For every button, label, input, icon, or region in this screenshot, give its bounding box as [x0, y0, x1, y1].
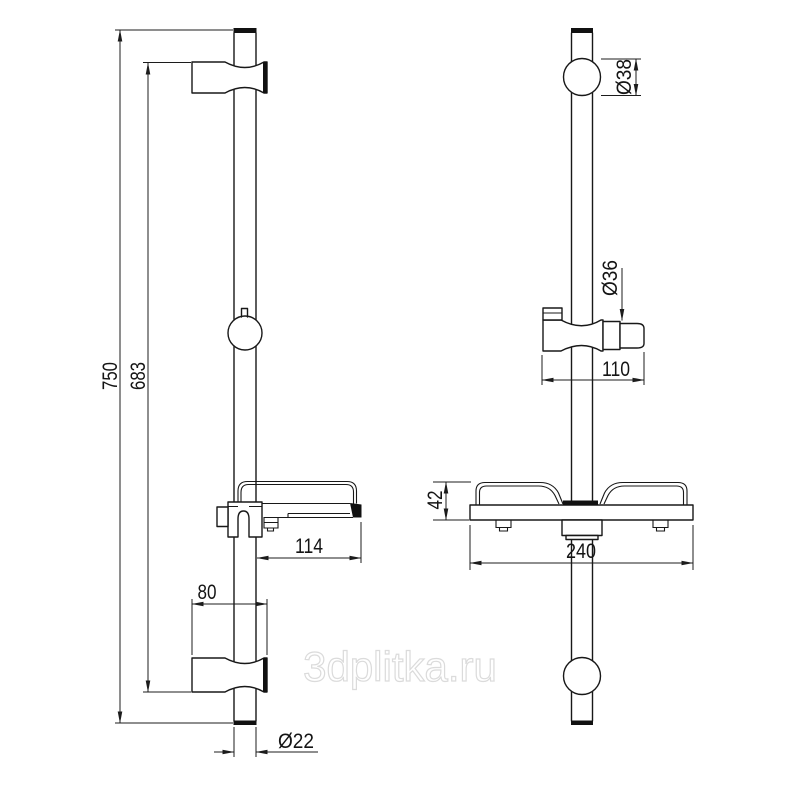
right-view-front: Ø38 Ø36 110 42 240: [424, 28, 693, 725]
rail-top-cap: [234, 28, 257, 33]
shelf-assembly-front: [470, 483, 693, 540]
bottom-wall-bracket-side: [192, 658, 268, 692]
dim-label-rail-diameter: Ø22: [278, 730, 314, 753]
shelf-rail-clamp-cap: [563, 501, 598, 506]
dim-label-soap-dish-depth: 114: [295, 535, 323, 558]
dim-label-overall-length: 750: [99, 362, 122, 390]
dim-label-holder-width: 110: [602, 358, 630, 381]
rail-top-cap-front: [571, 28, 593, 33]
shelf-plate: [470, 505, 693, 520]
bottom-wall-mount-front: [564, 658, 601, 695]
soap-dish-tray: [262, 503, 362, 531]
rail-front: [572, 33, 593, 721]
shelf-foot-left: [496, 520, 511, 531]
technical-drawing-page: 750 683 114 80 Ø22: [0, 0, 800, 800]
dim-mount-span: 683: [127, 63, 191, 693]
shelf-wire-left-inner: [480, 486, 560, 505]
dim-rail-diameter: Ø22: [214, 727, 318, 757]
soap-dish-clamp: [217, 502, 262, 537]
holder-body: [543, 320, 603, 351]
tray-edge-section: [350, 503, 362, 518]
dim-holder-diameter: Ø36: [599, 260, 622, 321]
dim-label-shelf-height: 42: [424, 491, 447, 510]
tray-under-clip: [264, 518, 278, 532]
handset-holder-front: [543, 308, 644, 351]
dim-label-top-mount-diameter: Ø38: [613, 59, 636, 95]
rail-bottom-cap-front: [571, 721, 593, 726]
shelf-center-bracket: [562, 520, 602, 536]
dim-label-shelf-width: 240: [566, 540, 596, 563]
holder-release-button: [543, 308, 562, 320]
dim-top-mount-diameter: Ø38: [601, 59, 641, 96]
dim-label-mount-span: 683: [127, 362, 150, 390]
shower-slide-bar-drawing: 750 683 114 80 Ø22: [0, 0, 800, 800]
rail-bottom-cap: [234, 721, 257, 726]
top-wall-mount-front: [564, 59, 601, 96]
dim-shelf-height: 42: [424, 482, 471, 520]
dim-label-bracket-width: 80: [198, 581, 217, 604]
dim-overall-length: 750: [99, 30, 233, 723]
dim-label-holder-diameter: Ø36: [599, 260, 622, 296]
shelf-foot-right: [653, 520, 668, 531]
holder-knob: [620, 324, 644, 349]
shelf-wire-right-inner: [604, 486, 684, 505]
rail-side: [234, 33, 256, 721]
holder-neck: [603, 322, 620, 350]
watermark: 3dplitka.ru: [303, 643, 497, 690]
top-wall-bracket-side: [192, 62, 268, 93]
slider-knob-side: [228, 309, 262, 351]
